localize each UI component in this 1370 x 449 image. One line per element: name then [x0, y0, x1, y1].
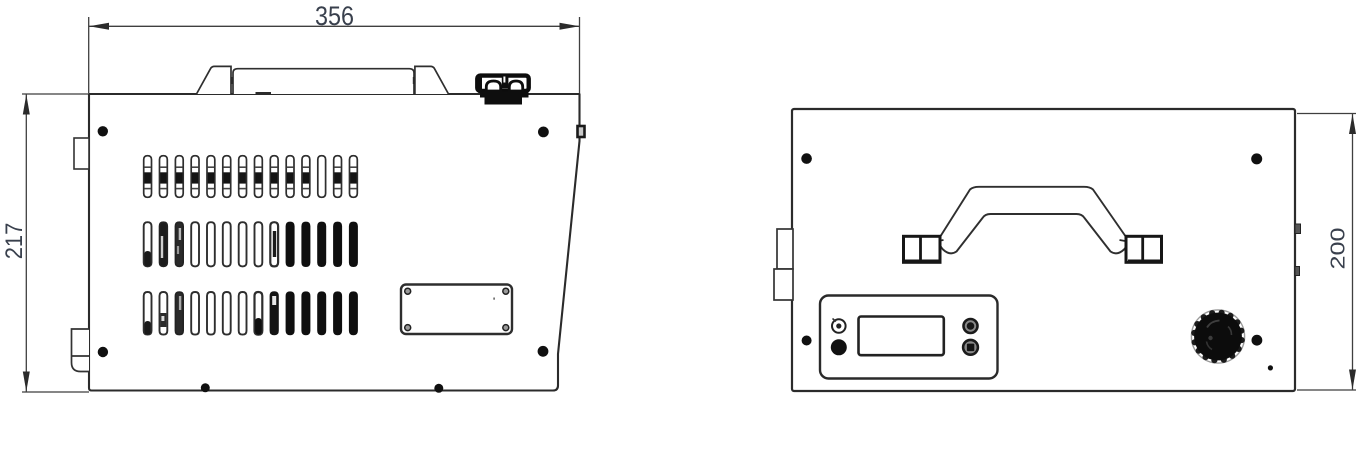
- svg-text:217: 217: [1, 223, 28, 260]
- svg-text:356: 356: [315, 1, 354, 31]
- svg-text:200: 200: [1326, 228, 1349, 270]
